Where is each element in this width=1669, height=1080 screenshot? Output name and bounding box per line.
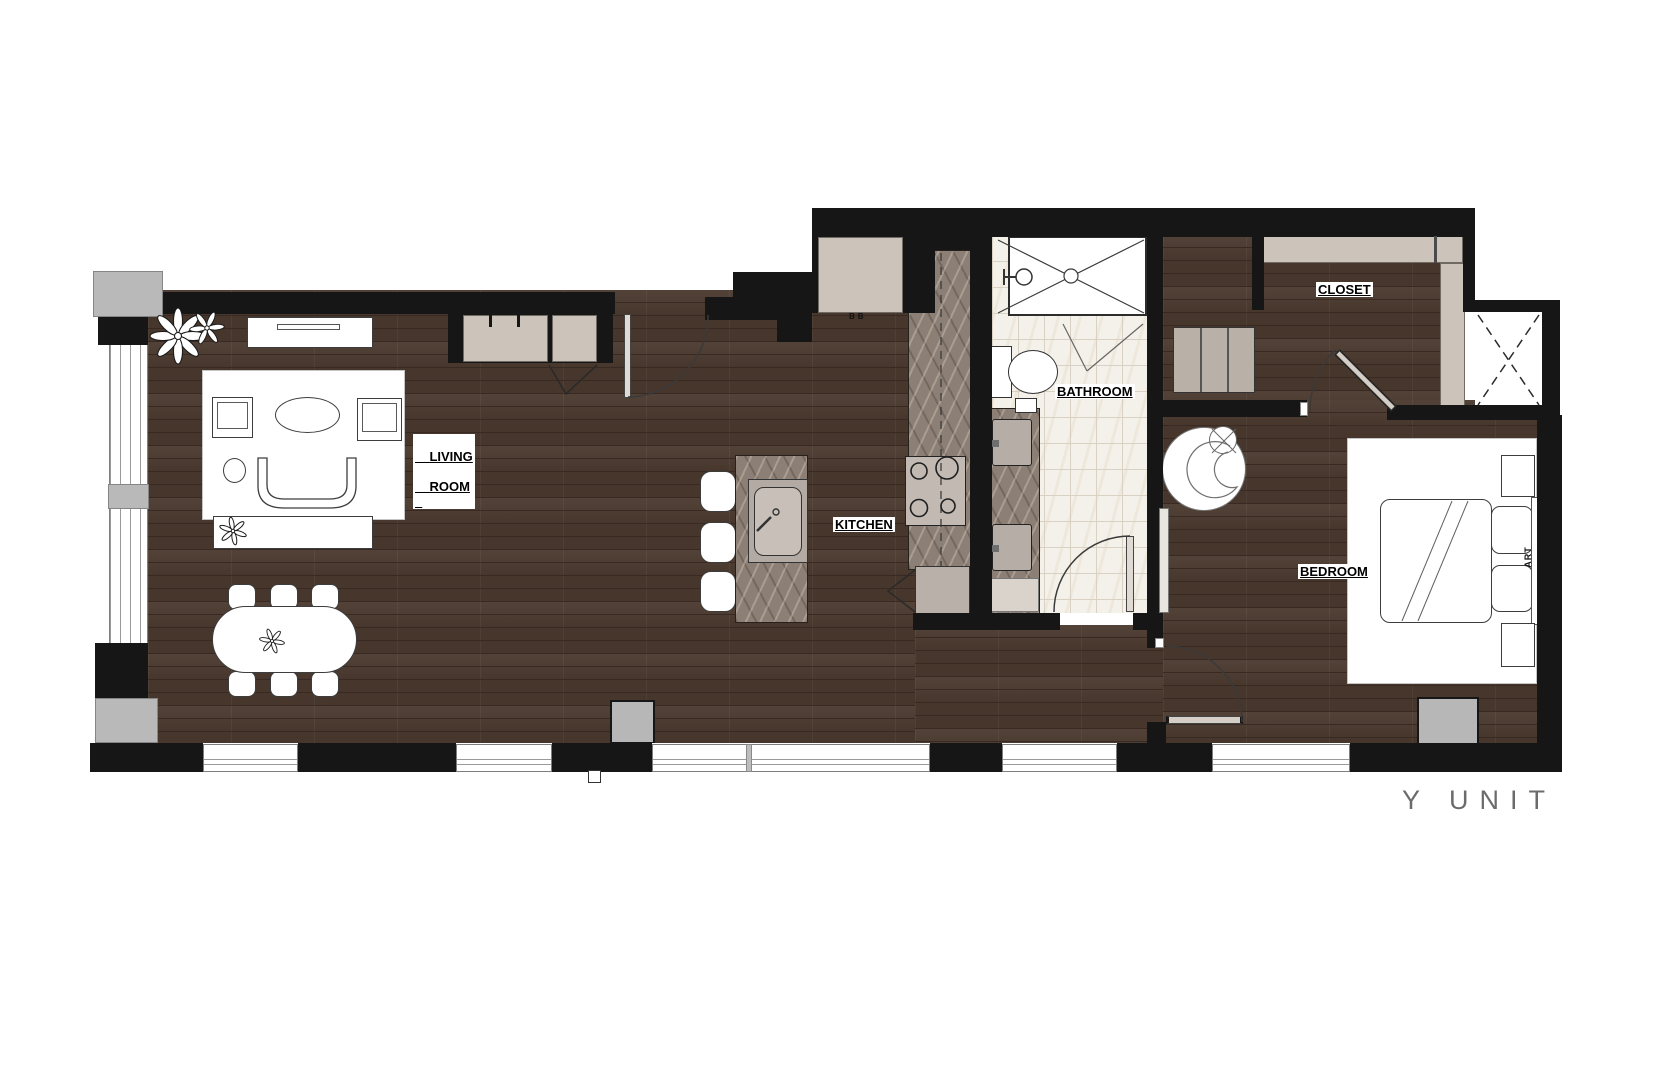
entry-door-leaf [624, 314, 631, 398]
armchair-left [212, 397, 253, 438]
elevator-shaft [1475, 312, 1542, 408]
wall-end-cap [1300, 402, 1308, 416]
bar-stool [700, 471, 736, 512]
closet-rod-tick [489, 315, 492, 327]
wall-top-living [157, 292, 615, 314]
wall-step-column [777, 272, 812, 342]
hvac-unit-living [610, 700, 655, 743]
dining-table [212, 606, 357, 673]
nightstand [1501, 455, 1535, 497]
wall-left-lower [95, 643, 148, 700]
coat-closet-left [463, 315, 548, 362]
wall-bottom-pier [930, 743, 1002, 772]
wall-closet-stub [1252, 235, 1264, 310]
wall-bed-door-stub [1147, 722, 1166, 743]
label-art: ART [1523, 542, 1533, 572]
wall-bedroom-top [1163, 400, 1307, 417]
label-bathroom: BATHROOM [1055, 384, 1135, 399]
wall-bedroom-right [1537, 415, 1562, 772]
bathroom-door-leaf [1126, 536, 1134, 612]
window-bottom [456, 744, 552, 772]
wall-bottom-pier [298, 743, 456, 772]
window-bottom [1212, 744, 1350, 772]
label-kitchen: KITCHEN [833, 517, 895, 532]
wall-bottom-pier [552, 743, 652, 772]
window-bottom [1002, 744, 1117, 772]
wall-bottom-pier [1117, 743, 1212, 772]
bar-stool [700, 571, 736, 612]
wall-shaft-bottom [1387, 405, 1545, 420]
column-pier [95, 698, 158, 743]
hvac-unit-bedroom [1417, 697, 1479, 744]
wall-shaft-right [1542, 300, 1560, 420]
utility-closet [818, 237, 903, 313]
floor-plan: LIVING ROOM KITCHEN BATHROOM CLOSET BEDR… [0, 0, 1669, 1080]
unit-title: Y UNIT [1402, 785, 1556, 816]
dining-chair [270, 671, 298, 697]
label-bedroom: BEDROOM [1298, 564, 1370, 579]
bar-stool [700, 522, 736, 563]
wall-kitchen-bath [970, 235, 992, 630]
coffee-table [275, 397, 340, 433]
wall-bath-bottom-left [913, 613, 1060, 630]
exterior-box [588, 770, 601, 783]
label-living-room: LIVING ROOM [413, 434, 475, 509]
media-console [213, 516, 373, 549]
chair-side-table [1209, 426, 1237, 454]
wardrobe-right [1440, 263, 1465, 408]
dresser [1173, 327, 1255, 393]
side-table [223, 458, 246, 483]
passage-floor [915, 625, 1165, 743]
cooktop [905, 456, 966, 526]
wall-end-cap [1155, 638, 1164, 648]
label-bb: BB [849, 312, 867, 321]
wall-shaft-left [1463, 220, 1475, 312]
window-mullion [108, 484, 149, 509]
dresser-divider [1200, 328, 1202, 392]
dining-chair [228, 671, 256, 697]
pocket-door [1159, 508, 1169, 613]
closet-rod-tick [517, 315, 520, 327]
bed [1380, 499, 1492, 623]
wall-bottom-pier [90, 743, 203, 772]
bathroom-shelf-box [1015, 398, 1037, 413]
label-living-line2: ROOM [429, 479, 469, 494]
pillow [1491, 565, 1533, 612]
column-pier [93, 271, 163, 317]
wardrobe-divider [1434, 236, 1437, 263]
toilet-bowl [1008, 350, 1058, 394]
shower-pan [1008, 236, 1147, 316]
label-living-line1: LIVING [429, 449, 472, 464]
counter-cabinet [915, 566, 970, 614]
wall-bottom-bedroom [1350, 743, 1562, 772]
window-mullion [746, 744, 752, 772]
coat-closet-right [552, 315, 597, 362]
window-bottom [652, 744, 930, 772]
tv-console [247, 317, 373, 348]
label-closet: CLOSET [1316, 282, 1373, 297]
wardrobe-top [1255, 236, 1463, 263]
wall-bath-bottom-right [1133, 613, 1163, 630]
bedroom-door-leaf [1166, 716, 1243, 724]
window-bottom [203, 744, 298, 772]
armchair-right [357, 398, 402, 441]
vanity-end-cabinet [989, 578, 1039, 612]
nightstand [1501, 623, 1535, 667]
living-rug [202, 370, 405, 520]
dining-chair [311, 671, 339, 697]
tv-screen [277, 324, 340, 330]
kitchen-sink-basin [754, 487, 802, 556]
dresser-divider [1227, 328, 1229, 392]
